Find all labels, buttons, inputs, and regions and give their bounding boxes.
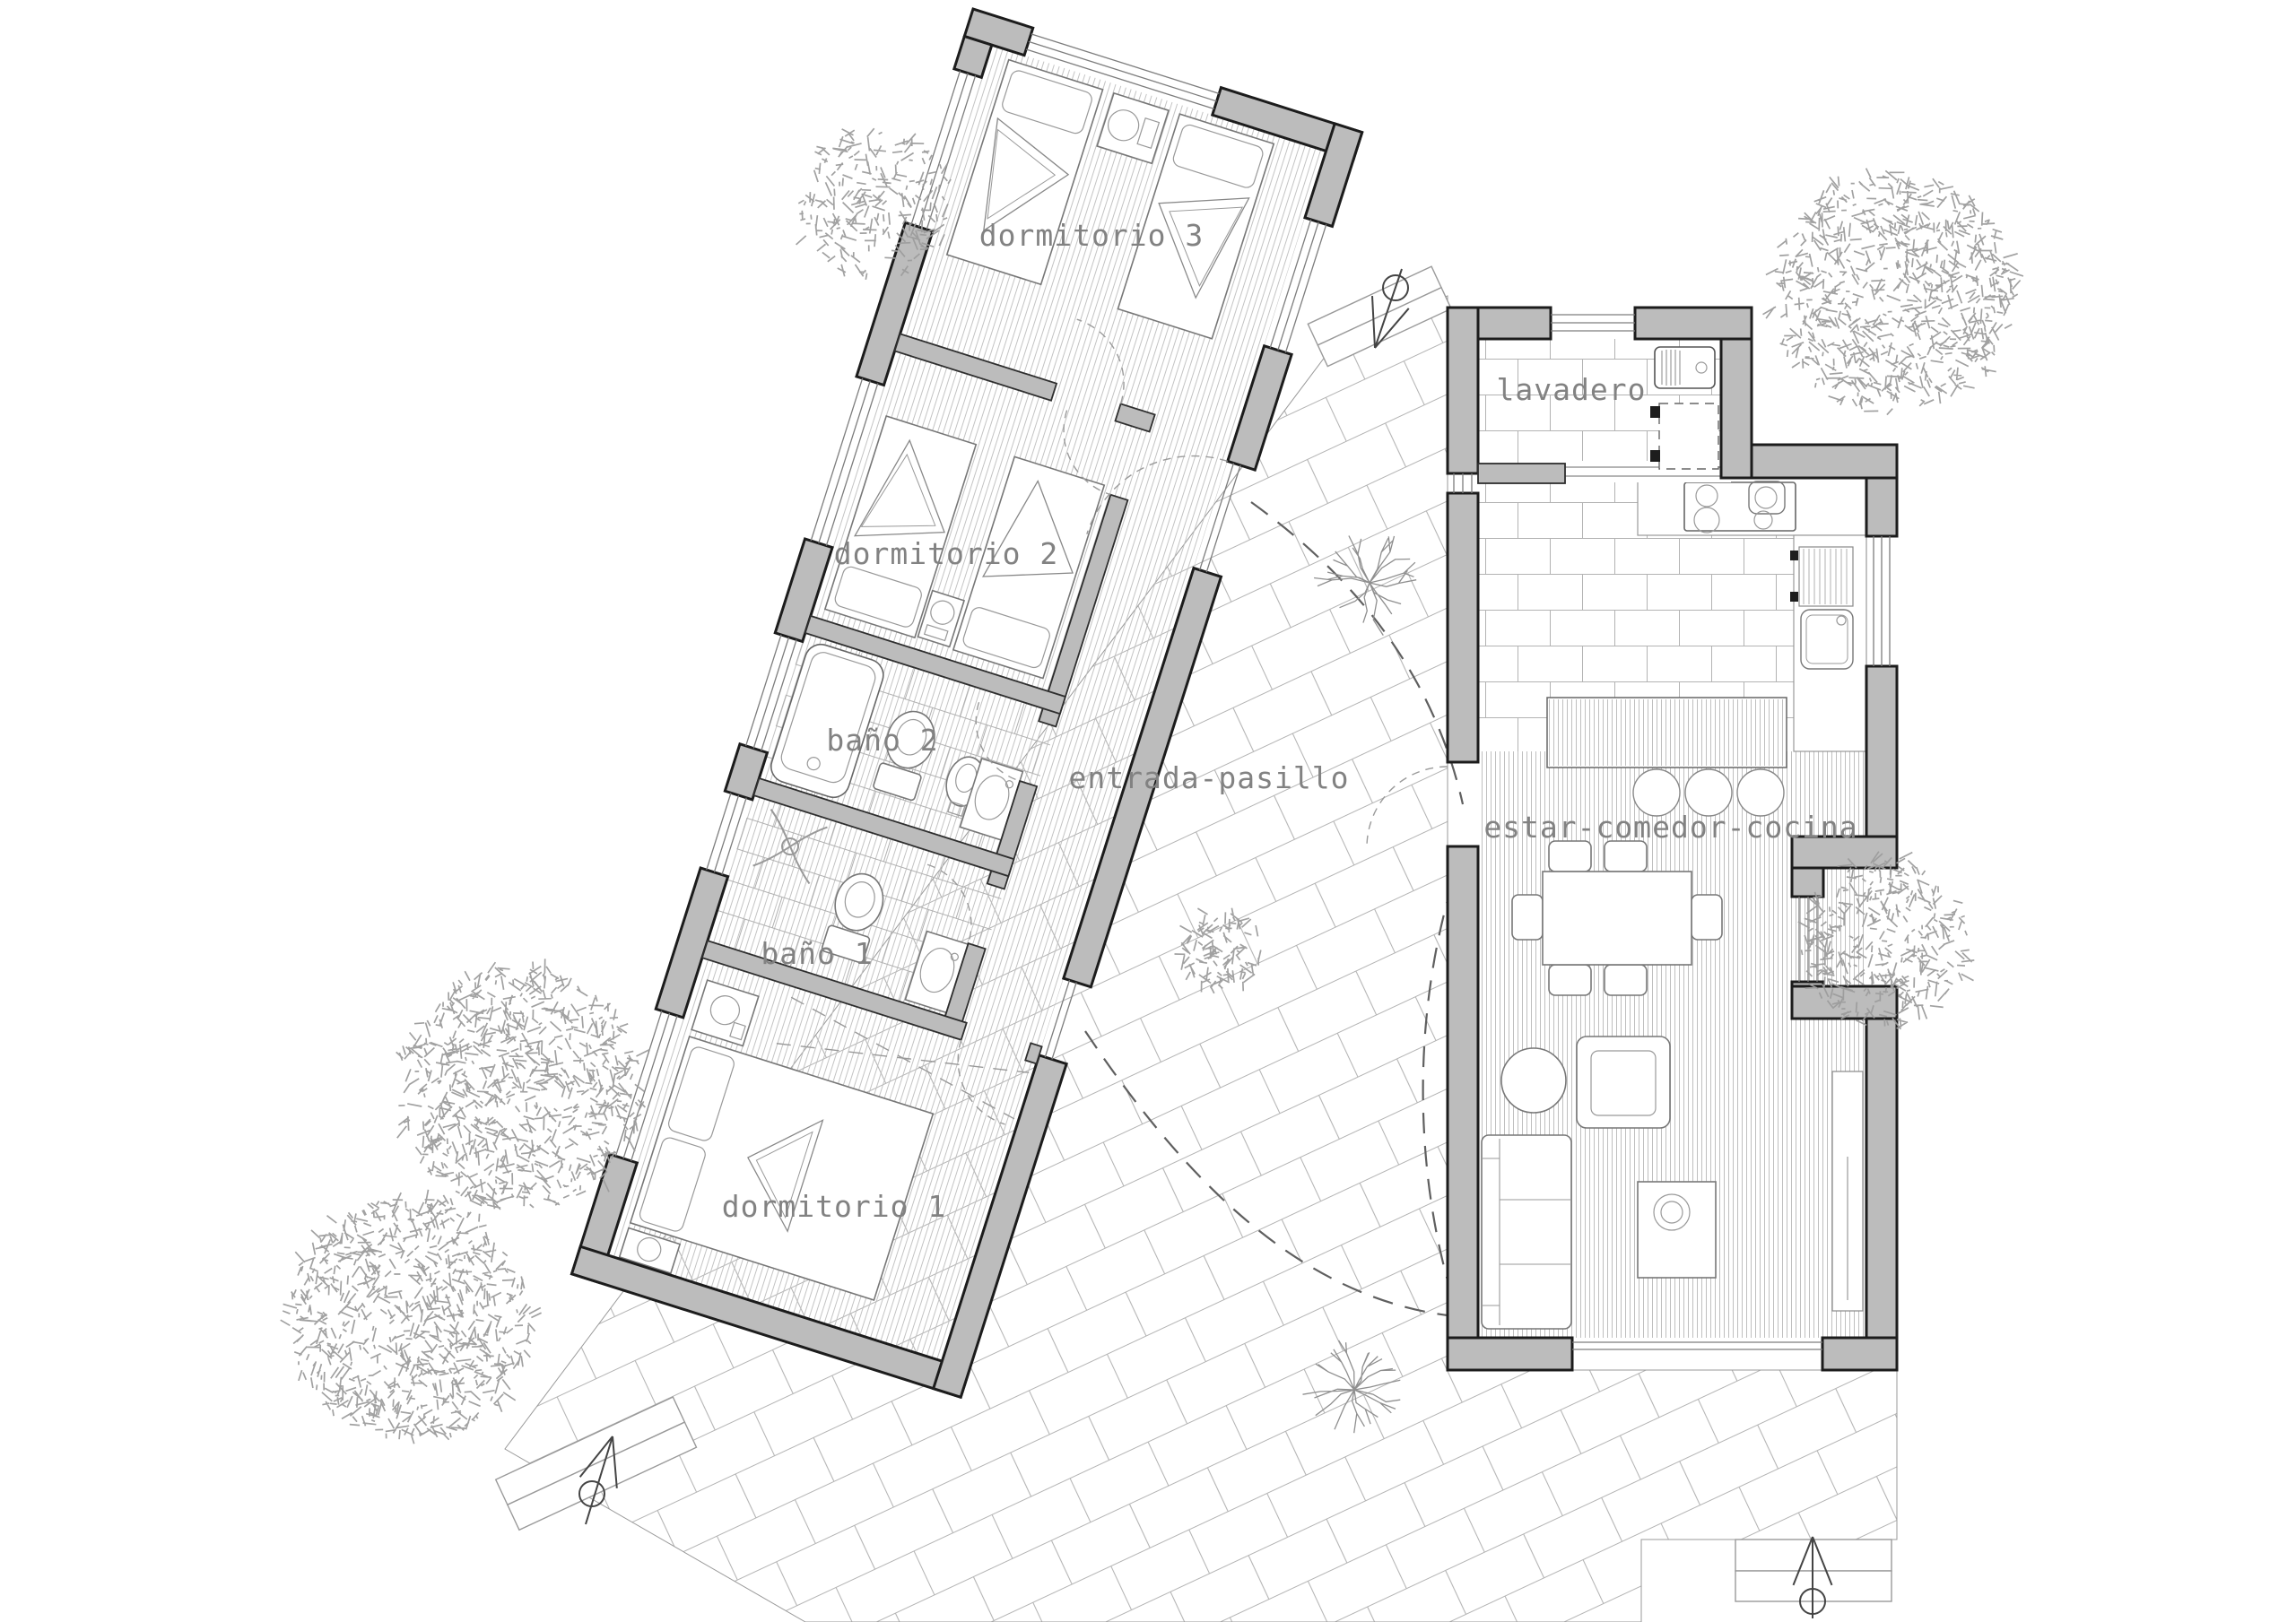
tree-scribble — [281, 1190, 542, 1444]
dining-chair — [1549, 965, 1591, 995]
side-table-round — [1501, 1048, 1566, 1113]
washing-machine — [1655, 347, 1715, 388]
wall — [1448, 1338, 1572, 1370]
tree-scribble — [1763, 169, 2023, 415]
wall — [1448, 308, 1478, 473]
wall — [1752, 445, 1897, 478]
dining-table — [1543, 872, 1692, 965]
window-east-kitchen — [1874, 536, 1890, 666]
room-label-entrada-pasillo: entrada-pasillo — [1068, 760, 1349, 795]
dining-chair — [1605, 841, 1647, 872]
wall — [1721, 339, 1752, 478]
room-label-dormitorio-3: dormitorio 3 — [979, 218, 1204, 253]
wall — [1792, 868, 1823, 897]
floor-plan-svg: dormitorio 3 dormitorio 2 baño 2 entrada… — [0, 0, 2296, 1622]
partition-lavadero — [1478, 464, 1565, 483]
wall — [1635, 308, 1752, 339]
room-label-bano-2: baño 2 — [826, 723, 938, 758]
island-top-hatch — [1549, 699, 1785, 766]
window-north — [1551, 315, 1635, 331]
room-label-dormitorio-1: dormitorio 1 — [722, 1189, 946, 1224]
hinge — [1650, 406, 1660, 418]
dining-chair — [1692, 895, 1722, 940]
room-label-lavadero: lavadero — [1497, 372, 1647, 407]
dining-chair — [1549, 841, 1591, 872]
wall — [1866, 478, 1897, 536]
wall — [1448, 493, 1478, 762]
lavadero-appliances — [1650, 347, 1718, 469]
stove — [1684, 482, 1796, 531]
cabinet-handle — [1790, 592, 1798, 602]
wall — [1822, 1338, 1897, 1370]
room-label-bano-1: baño 1 — [761, 936, 873, 971]
cabinet-handle — [1790, 551, 1798, 560]
room-label-dormitorio-2: dormitorio 2 — [834, 536, 1058, 571]
window-west-small — [1454, 473, 1472, 493]
dining-chair — [1605, 965, 1647, 995]
dining-chair — [1512, 895, 1543, 940]
wall — [1866, 1019, 1897, 1370]
room-label-estar-comedor-cocina: estar-comedor-cocina — [1483, 810, 1857, 845]
sofa — [1482, 1135, 1571, 1329]
sink-drainboard — [1799, 547, 1853, 606]
floor-plan-canvas: dormitorio 3 dormitorio 2 baño 2 entrada… — [0, 0, 2296, 1622]
wall — [1448, 846, 1478, 1370]
wall — [1866, 666, 1897, 837]
glass-door-south — [1572, 1342, 1822, 1349]
appliance-reserved — [1659, 403, 1718, 469]
hinge — [1650, 450, 1660, 462]
